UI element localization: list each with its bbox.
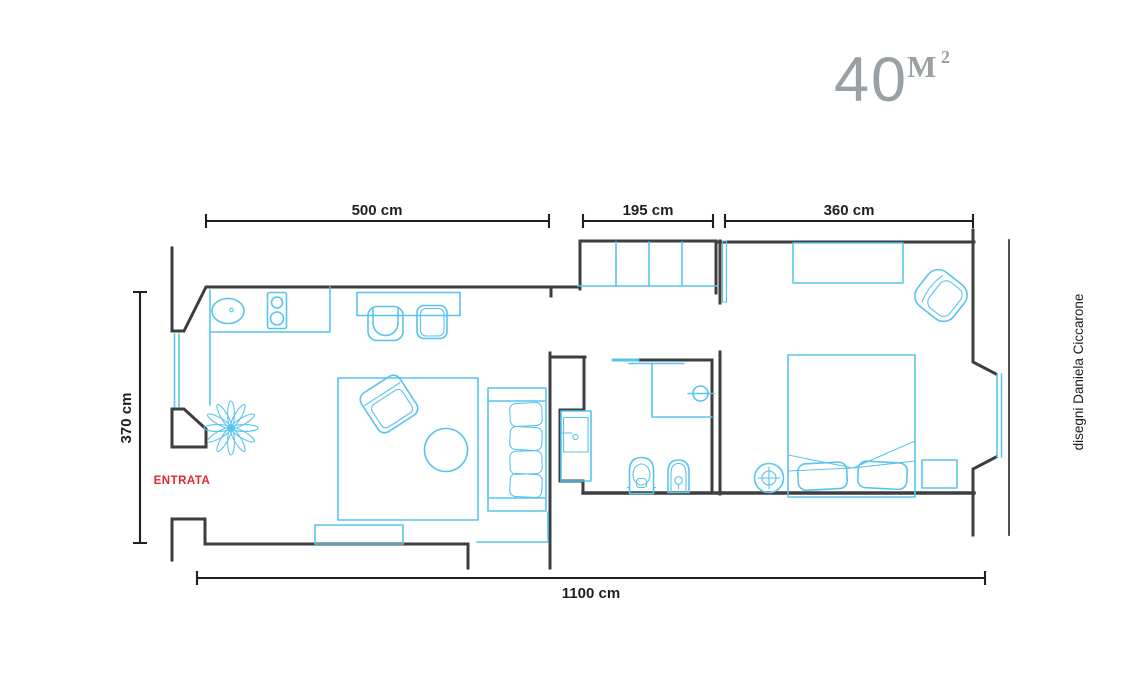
shower-enclosure	[652, 363, 712, 417]
floor-plan-page: 40 M 2 500 cm 195 cm 360 cm 370 cm 1100 …	[0, 0, 1140, 680]
coffee-table	[425, 429, 468, 472]
tv-stand	[315, 525, 403, 544]
toilet	[628, 458, 656, 494]
dimension-label: 195 cm	[623, 202, 674, 219]
window-left	[175, 334, 180, 407]
wall-bathroom-east	[637, 360, 712, 493]
shower-head	[688, 386, 714, 401]
kitchen-sink-faucet	[230, 308, 234, 312]
pillow	[797, 462, 847, 491]
dining-chair-round	[368, 307, 403, 341]
living-room	[204, 372, 548, 544]
double-bed	[788, 355, 915, 497]
dimension-hallway-width: 195 cm	[583, 202, 713, 228]
sofa	[488, 388, 546, 511]
cooktop-burner	[271, 312, 284, 325]
closet-dividers	[616, 242, 682, 286]
dining-area	[357, 293, 460, 341]
wall-bedroom-east	[973, 230, 996, 535]
hallway-closet	[578, 242, 717, 286]
plant	[204, 401, 258, 455]
washbasin	[561, 411, 591, 481]
bedroom-armchair	[910, 264, 973, 326]
window-right	[997, 374, 1002, 457]
cooktop	[268, 293, 287, 329]
armchair	[357, 372, 421, 436]
nightstand	[922, 460, 957, 488]
floor-edge-line	[477, 512, 548, 542]
dimension-depth: 370 cm	[118, 292, 147, 543]
dimension-label: 370 cm	[118, 393, 135, 444]
wall-top-living	[172, 248, 580, 331]
bedroom-door-leaf	[723, 241, 727, 302]
walls	[172, 230, 1009, 568]
area-unit: M	[907, 49, 936, 84]
area-exponent: 2	[941, 47, 950, 67]
area-number: 40	[834, 45, 908, 115]
wall-entrance-pier	[172, 409, 206, 447]
bidet	[668, 460, 689, 493]
kitchen-counter	[210, 287, 330, 405]
dimension-label: 1100 cm	[562, 585, 620, 602]
bed-fold-lines	[788, 441, 915, 471]
dimension-label: 360 cm	[824, 202, 875, 219]
cooktop-burner	[272, 297, 283, 308]
designer-credit: disegni Daniela Ciccarone	[1071, 294, 1086, 451]
entrance-label: ENTRATA	[154, 475, 211, 487]
area-title: 40 M 2	[834, 45, 950, 115]
dimension-living-width: 500 cm	[206, 202, 549, 228]
dimension-label: 500 cm	[352, 202, 403, 219]
kitchen-sink	[212, 299, 244, 324]
dimension-bedroom-width: 360 cm	[725, 202, 973, 228]
dimension-total-length: 1100 cm	[197, 571, 985, 602]
dining-chair-square	[417, 306, 447, 339]
bedroom	[755, 243, 973, 497]
kitchen	[210, 287, 330, 405]
floor-plan-drawing: 40 M 2 500 cm 195 cm 360 cm 370 cm 1100 …	[0, 0, 1140, 680]
bedside-table-round	[755, 464, 784, 493]
wardrobe	[793, 243, 903, 283]
